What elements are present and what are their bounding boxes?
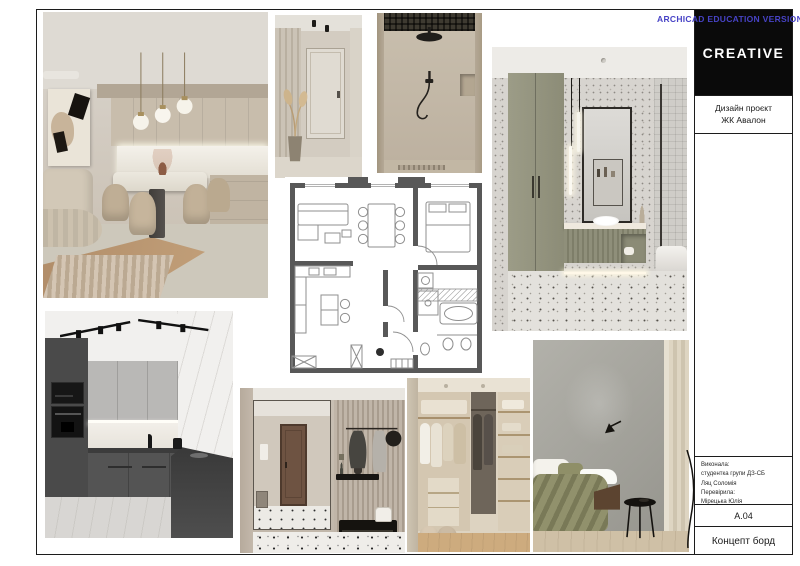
coat-rack (342, 424, 401, 507)
mirror (582, 107, 633, 223)
pendant-lights (129, 52, 197, 149)
photo-shower (377, 13, 482, 173)
kettle (173, 438, 182, 449)
reflected-bench (256, 491, 269, 508)
bathtub (656, 246, 687, 272)
sheet-title-box: Концепт борд (695, 527, 792, 556)
side-table (622, 497, 658, 539)
folded-item (502, 445, 523, 453)
empty-box (695, 134, 792, 457)
plan-column (376, 348, 384, 356)
dining-chair (102, 184, 129, 221)
terrazzo-floor (508, 271, 687, 331)
title-block: CREATIVE Дизайн проєкт ЖК Авалон Виконал… (694, 9, 793, 555)
project-line1: Дизайн проєкт (715, 103, 772, 114)
wall-sconce (599, 416, 624, 441)
logo-text: CREATIVE (703, 45, 785, 61)
folded-item (502, 400, 524, 408)
sheet-number: A.04 (734, 511, 753, 521)
pendant-cord (579, 78, 580, 112)
credits-line: Перевірила: (701, 489, 786, 498)
glass-screen-frame (660, 84, 662, 263)
side-wall (350, 28, 362, 158)
shower-fixtures (403, 27, 456, 123)
drawer-handle (108, 466, 131, 468)
ac-unit (43, 71, 79, 80)
left-wall-edge (377, 13, 384, 173)
led-tube-light (577, 112, 580, 152)
archicad-watermark: ARCHICAD EDUCATION VERSION (657, 14, 800, 24)
sage-cabinet (508, 73, 565, 272)
mirror (253, 400, 331, 530)
photo-entryway (240, 388, 405, 553)
drain-grid (398, 165, 445, 170)
cabinet-handle (532, 176, 534, 198)
dark-garment (473, 414, 482, 470)
photo-bathroom (492, 47, 687, 331)
credits-line: Виконала: (701, 461, 786, 470)
folded-stack (421, 400, 466, 414)
terrazzo-floor (253, 532, 405, 553)
door (306, 48, 344, 139)
photo-living-dining (43, 12, 268, 298)
shelf-column (498, 392, 530, 531)
pendant-cord (571, 78, 572, 146)
mirror-shelf-reflection (593, 159, 623, 206)
textured-wall (240, 388, 253, 553)
left-closet (418, 392, 470, 531)
dark-garment (484, 414, 493, 465)
credits-line: студентка групи ДЗ-СБ (701, 470, 786, 479)
ceiling (240, 388, 405, 400)
photo-wardrobe (407, 378, 530, 552)
bowl (190, 453, 209, 458)
photo-hallway (275, 15, 362, 178)
backsplash (88, 423, 178, 448)
ceiling-spot (481, 384, 485, 388)
credits-line: Мірецька Юлія (701, 498, 786, 505)
hanging-shirt (443, 423, 453, 462)
ceiling-spot (444, 384, 448, 388)
right-wall-edge (475, 13, 482, 173)
plan-windows (305, 183, 469, 188)
dried-plant (636, 183, 648, 223)
hanging-shirt (454, 423, 465, 465)
terrazzo-pillar (492, 47, 504, 331)
rug (43, 255, 174, 298)
wood-floor (533, 531, 689, 552)
credits-line: Ляц Соломія (701, 480, 786, 489)
folded-item (502, 423, 521, 431)
cabinet-handle (538, 176, 540, 198)
vessel-sink (593, 216, 618, 226)
project-line2: ЖК Авалон (721, 115, 765, 126)
oven-handle (55, 413, 81, 415)
microwave (51, 382, 84, 404)
photo-kitchen (45, 311, 233, 538)
faucet (148, 434, 152, 450)
reflected-door (280, 424, 307, 506)
toe-kick-light (564, 272, 646, 274)
hanging-shirt (420, 423, 430, 465)
wood-floor (418, 533, 530, 552)
table-plant (151, 149, 174, 175)
credits-box: Виконала: студентка групи ДЗ-СБ Ляц Соло… (695, 457, 792, 505)
wall-artwork (48, 89, 91, 166)
photo-bedroom (533, 340, 689, 552)
island-counter (171, 447, 233, 538)
base-cabinets (88, 453, 178, 498)
center-closet (471, 392, 496, 514)
sheet-number-box: A.04 (695, 505, 792, 527)
dining-chair (183, 184, 210, 224)
towels (624, 247, 634, 255)
sheet-title: Концепт борд (712, 536, 775, 547)
drawer-unit (428, 478, 459, 525)
ceiling-spotlight (325, 25, 329, 32)
ceiling (407, 378, 530, 392)
wall-niche (460, 74, 475, 96)
intercom-panel (260, 444, 268, 459)
floor-plan-drawing (285, 177, 487, 382)
photo-floor-plan (285, 177, 487, 382)
led-tube-light (569, 146, 572, 194)
layout-sheet: CREATIVE Дизайн проєкт ЖК Авалон Виконал… (0, 0, 800, 566)
pampas-vase (282, 88, 308, 161)
ceiling-spotlight (312, 20, 316, 27)
mirror-edge (407, 378, 418, 552)
project-name-box: Дизайн проєкт ЖК Авалон (695, 96, 792, 134)
hanging-shirt (431, 423, 441, 468)
reflected-floor (254, 506, 330, 529)
ottoman (43, 209, 102, 246)
dining-chair (207, 178, 230, 212)
upper-cabinets (88, 361, 178, 420)
dining-chair (129, 192, 156, 235)
handbag (375, 507, 392, 522)
oven (51, 406, 84, 438)
vanity-open-shelf (621, 234, 646, 262)
door-handle (337, 91, 340, 98)
